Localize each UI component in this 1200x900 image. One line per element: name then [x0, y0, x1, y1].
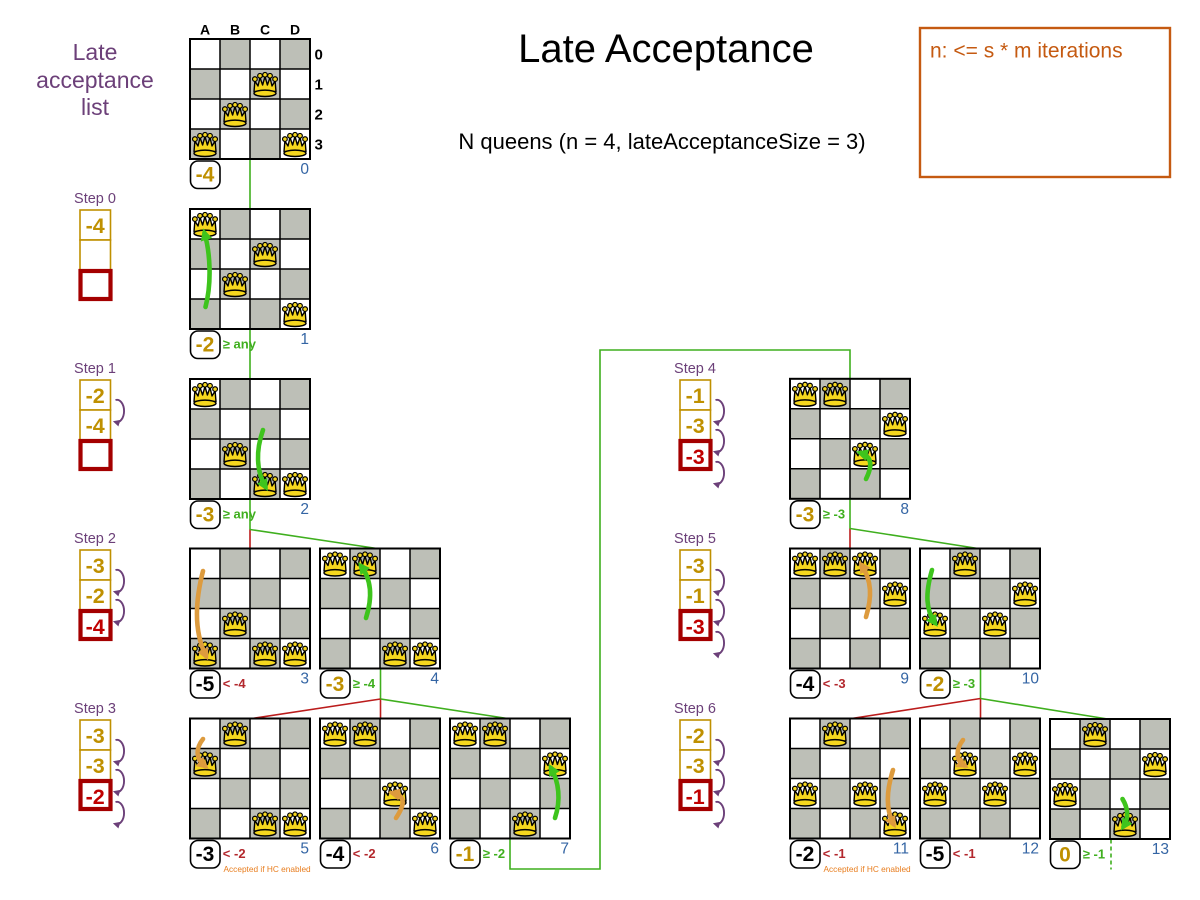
svg-text:10: 10 — [1022, 671, 1040, 688]
svg-text:< -1: < -1 — [823, 846, 846, 861]
svg-text:-4: -4 — [86, 414, 105, 438]
svg-text:-3: -3 — [326, 673, 345, 696]
svg-text:≥ -3: ≥ -3 — [953, 676, 975, 691]
svg-text:≥ any: ≥ any — [223, 337, 257, 352]
svg-text:-2: -2 — [196, 334, 215, 357]
svg-text:A: A — [200, 22, 210, 38]
svg-text:D: D — [290, 22, 300, 38]
svg-text:-2: -2 — [86, 384, 105, 408]
svg-text:2: 2 — [315, 107, 323, 124]
svg-text:-2: -2 — [926, 673, 945, 696]
svg-text:Step 6: Step 6 — [674, 701, 716, 717]
svg-text:-3: -3 — [686, 554, 705, 578]
svg-text:7: 7 — [560, 841, 569, 858]
svg-text:-5: -5 — [926, 843, 945, 866]
svg-text:-4: -4 — [86, 615, 105, 639]
svg-text:list: list — [81, 94, 110, 120]
svg-text:3: 3 — [315, 137, 323, 154]
svg-text:-3: -3 — [796, 503, 815, 526]
svg-text:Step 3: Step 3 — [74, 701, 116, 717]
svg-text:Accepted if HC enabled: Accepted if HC enabled — [224, 864, 312, 874]
svg-text:Step 4: Step 4 — [674, 361, 716, 377]
svg-text:≥ -3: ≥ -3 — [823, 506, 845, 521]
svg-text:3: 3 — [300, 671, 309, 688]
svg-text:-1: -1 — [686, 584, 705, 608]
svg-text:-3: -3 — [86, 724, 105, 748]
svg-text:-1: -1 — [456, 843, 475, 866]
svg-text:N queens (n = 4, lateAcceptanc: N queens (n = 4, lateAcceptanceSize = 3) — [458, 129, 865, 154]
svg-text:Late: Late — [73, 39, 118, 65]
svg-text:13: 13 — [1152, 841, 1169, 858]
svg-text:≥ -4: ≥ -4 — [353, 676, 376, 691]
svg-text:-3: -3 — [686, 445, 705, 469]
svg-text:5: 5 — [300, 841, 309, 858]
svg-text:-2: -2 — [686, 724, 705, 748]
svg-text:-4: -4 — [196, 164, 215, 187]
svg-text:Step 5: Step 5 — [674, 531, 716, 547]
svg-text:< -4: < -4 — [223, 676, 247, 691]
svg-text:acceptance: acceptance — [36, 67, 154, 93]
svg-text:-2: -2 — [86, 584, 105, 608]
svg-text:6: 6 — [430, 841, 439, 858]
svg-text:Accepted if HC enabled: Accepted if HC enabled — [824, 864, 912, 874]
svg-text:-4: -4 — [86, 214, 105, 238]
svg-text:< -2: < -2 — [223, 846, 246, 861]
svg-text:-1: -1 — [686, 384, 705, 408]
svg-text:-3: -3 — [196, 504, 215, 527]
svg-text:< -1: < -1 — [953, 846, 976, 861]
svg-text:B: B — [230, 22, 240, 38]
svg-text:≥ any: ≥ any — [223, 507, 257, 522]
svg-text:< -2: < -2 — [353, 846, 376, 861]
svg-text:Step 1: Step 1 — [74, 361, 116, 377]
svg-text:Step 2: Step 2 — [74, 531, 116, 547]
svg-text:2: 2 — [300, 501, 309, 518]
svg-text:1: 1 — [300, 331, 309, 348]
svg-text:-4: -4 — [796, 673, 815, 696]
svg-text:Late Acceptance: Late Acceptance — [518, 27, 814, 71]
svg-text:-1: -1 — [686, 785, 705, 809]
svg-text:n: <= s * m iterations: n: <= s * m iterations — [930, 40, 1123, 63]
svg-text:-2: -2 — [796, 843, 815, 866]
svg-text:-3: -3 — [686, 754, 705, 778]
svg-text:-3: -3 — [686, 615, 705, 639]
svg-text:-5: -5 — [196, 673, 215, 696]
svg-text:9: 9 — [900, 671, 909, 688]
svg-text:1: 1 — [315, 77, 323, 94]
svg-text:8: 8 — [900, 501, 909, 518]
svg-text:-3: -3 — [196, 843, 215, 866]
svg-text:≥ -1: ≥ -1 — [1083, 847, 1105, 862]
svg-text:Step 0: Step 0 — [74, 191, 116, 207]
svg-text:4: 4 — [430, 671, 439, 688]
svg-text:12: 12 — [1022, 841, 1039, 858]
svg-text:≥ -2: ≥ -2 — [483, 846, 505, 861]
svg-text:-3: -3 — [86, 754, 105, 778]
svg-text:0: 0 — [1059, 844, 1071, 867]
svg-text:-3: -3 — [686, 414, 705, 438]
svg-text:-4: -4 — [326, 843, 345, 866]
svg-text:0: 0 — [300, 161, 309, 178]
svg-text:-2: -2 — [86, 785, 105, 809]
svg-text:< -3: < -3 — [823, 676, 846, 691]
svg-text:0: 0 — [315, 47, 323, 64]
svg-text:11: 11 — [893, 841, 909, 858]
svg-text:C: C — [260, 22, 270, 38]
svg-text:-3: -3 — [86, 554, 105, 578]
